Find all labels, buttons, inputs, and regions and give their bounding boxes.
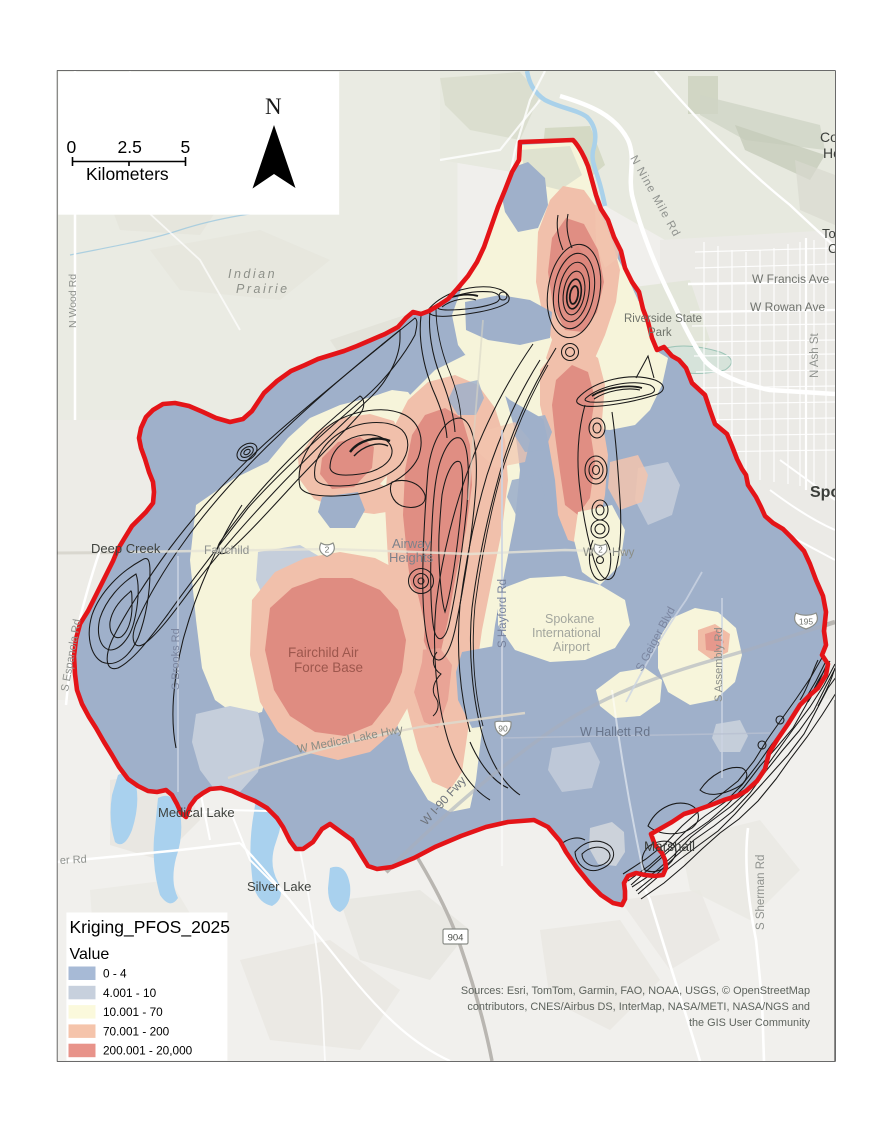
svg-text:4.001 - 10: 4.001 - 10 bbox=[103, 986, 157, 1000]
svg-text:N: N bbox=[265, 94, 282, 119]
svg-text:er Rd: er Rd bbox=[60, 854, 87, 867]
svg-text:International: International bbox=[532, 626, 601, 640]
svg-text:Airway: Airway bbox=[392, 536, 432, 551]
svg-text:Marshall: Marshall bbox=[644, 839, 695, 854]
svg-text:70.001 - 200: 70.001 - 200 bbox=[103, 1024, 170, 1038]
svg-text:Heights: Heights bbox=[389, 550, 434, 565]
svg-text:Hwy: Hwy bbox=[612, 547, 635, 559]
svg-text:W Hallett Rd: W Hallett Rd bbox=[580, 725, 650, 739]
svg-text:Prairie: Prairie bbox=[236, 282, 290, 296]
svg-text:Spokane: Spokane bbox=[545, 612, 594, 626]
svg-text:200.001 - 20,000: 200.001 - 20,000 bbox=[103, 1044, 193, 1058]
svg-text:contributors, CNES/Airbus DS,: contributors, CNES/Airbus DS, InterMap, … bbox=[467, 1001, 810, 1013]
svg-text:W Rowan Ave: W Rowan Ave bbox=[750, 300, 825, 314]
svg-text:S Sherman Rd: S Sherman Rd bbox=[755, 855, 767, 930]
svg-text:2.5: 2.5 bbox=[118, 137, 142, 157]
svg-text:Airport: Airport bbox=[553, 640, 590, 654]
svg-text:2: 2 bbox=[325, 545, 330, 555]
svg-text:Force Base: Force Base bbox=[294, 660, 363, 675]
svg-text:10.001 - 70: 10.001 - 70 bbox=[103, 1005, 163, 1019]
svg-text:Fairchild Air: Fairchild Air bbox=[288, 645, 359, 660]
svg-text:Silver Lake: Silver Lake bbox=[247, 879, 311, 894]
svg-text:Medical Lake: Medical Lake bbox=[158, 805, 235, 820]
svg-text:Park: Park bbox=[648, 327, 672, 339]
svg-text:Sources: Esri, TomTom, Garmin,: Sources: Esri, TomTom, Garmin, FAO, NOAA… bbox=[461, 985, 810, 997]
svg-text:W: W bbox=[583, 547, 594, 559]
svg-text:S Brooks Rd: S Brooks Rd bbox=[170, 628, 182, 690]
svg-text:W Francis Ave: W Francis Ave bbox=[752, 272, 829, 286]
svg-text:0 - 4: 0 - 4 bbox=[103, 967, 127, 981]
svg-text:Riverside State: Riverside State bbox=[624, 313, 702, 325]
svg-text:To: To bbox=[822, 226, 836, 241]
svg-text:Kilometers: Kilometers bbox=[86, 164, 169, 184]
svg-text:Value: Value bbox=[70, 946, 110, 963]
svg-text:90: 90 bbox=[498, 724, 508, 734]
svg-text:0: 0 bbox=[67, 137, 77, 157]
svg-text:904: 904 bbox=[448, 933, 464, 944]
svg-text:N Wood Rd: N Wood Rd bbox=[67, 274, 79, 328]
svg-text:2: 2 bbox=[598, 546, 603, 555]
svg-text:the GIS User Community: the GIS User Community bbox=[689, 1017, 811, 1029]
svg-text:Deep Creek: Deep Creek bbox=[91, 541, 161, 556]
svg-text:S Assembly Rd: S Assembly Rd bbox=[713, 627, 725, 702]
svg-text:S Hayford Rd: S Hayford Rd bbox=[497, 579, 509, 648]
svg-text:Fairchild: Fairchild bbox=[204, 543, 249, 557]
svg-text:5: 5 bbox=[181, 137, 191, 157]
svg-text:Indian: Indian bbox=[228, 267, 277, 281]
svg-text:195: 195 bbox=[799, 617, 813, 627]
svg-text:Kriging_PFOS_2025: Kriging_PFOS_2025 bbox=[70, 917, 231, 938]
svg-text:N Ash St: N Ash St bbox=[809, 332, 821, 378]
